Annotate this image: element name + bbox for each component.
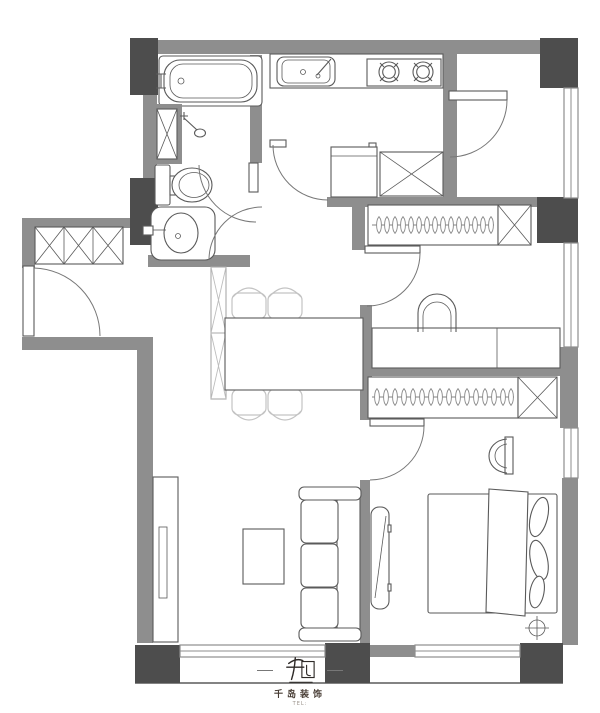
structural-column xyxy=(540,38,578,88)
storage-room xyxy=(449,91,507,157)
wardrobe-cabinet-x xyxy=(498,205,531,245)
bathtub xyxy=(156,56,262,106)
study-room xyxy=(365,205,560,368)
wall xyxy=(130,40,578,54)
entry xyxy=(23,227,123,336)
wall xyxy=(137,337,153,643)
wall xyxy=(360,480,370,643)
wardrobe-bottom xyxy=(368,377,557,418)
bedroom-door xyxy=(370,419,424,480)
bathroom xyxy=(143,56,262,260)
wall xyxy=(443,40,457,198)
wardrobe-cabinet-x xyxy=(518,377,557,418)
sofa-back xyxy=(337,494,360,634)
sofa-armrest xyxy=(299,487,361,500)
wall xyxy=(560,347,578,428)
floor-plan-page: 千岛装饰 TEL: xyxy=(0,0,600,713)
entry-door xyxy=(23,266,100,336)
logo: 千岛装饰 TEL: xyxy=(0,654,600,707)
wardrobe-top xyxy=(368,205,531,245)
dining-chair xyxy=(268,389,302,420)
plumbing-shaft xyxy=(152,104,182,164)
desk xyxy=(372,328,560,368)
dining-table xyxy=(225,318,363,390)
wall xyxy=(352,207,365,250)
structural-column xyxy=(537,197,578,243)
floor-plan-drawing xyxy=(0,0,600,713)
logo-divider-right xyxy=(327,670,343,671)
qiandao-seal-icon xyxy=(283,654,317,686)
bedside-chair xyxy=(489,437,513,474)
study-door xyxy=(365,246,420,306)
kitchen-storage-cabinet xyxy=(380,152,443,196)
sofa-cushion xyxy=(301,588,338,628)
dining-chair xyxy=(232,389,266,420)
wall xyxy=(22,228,35,268)
hall-door xyxy=(209,207,262,260)
window xyxy=(564,243,578,347)
blanket xyxy=(486,489,528,616)
sofa xyxy=(299,487,361,641)
wall xyxy=(22,337,153,350)
refrigerator xyxy=(331,143,377,197)
living-room xyxy=(153,477,361,642)
coffee-table xyxy=(243,529,284,584)
sofa-cushion xyxy=(301,544,338,587)
logo-phone-text: TEL: xyxy=(293,701,308,707)
master-bedroom xyxy=(368,377,557,640)
kitchen-door xyxy=(270,140,328,200)
dining-chair xyxy=(232,288,266,319)
wall xyxy=(562,478,578,645)
window xyxy=(564,428,578,478)
wash-basin xyxy=(143,207,215,260)
toilet xyxy=(155,165,212,205)
duct-column xyxy=(211,267,226,399)
shoe-cabinet xyxy=(35,227,123,264)
dining-area xyxy=(211,267,363,420)
gas-stove xyxy=(367,59,441,86)
logo-company-name: 千岛装饰 xyxy=(274,687,326,700)
wall-tv xyxy=(371,507,391,609)
sofa-armrest xyxy=(299,628,361,641)
double-bed xyxy=(428,489,557,616)
logo-divider-left xyxy=(257,670,273,671)
desk-chair xyxy=(418,294,456,332)
dining-chair xyxy=(268,288,302,319)
sofa-cushion xyxy=(301,500,338,543)
window xyxy=(564,88,578,198)
kitchen-sink xyxy=(277,57,335,86)
basin-tap-icon xyxy=(143,226,153,235)
structural-column xyxy=(130,38,158,95)
shower-icon xyxy=(180,112,206,137)
tv-cabinet xyxy=(153,477,178,642)
floor-drain-symbol xyxy=(525,616,549,640)
storage-room-door xyxy=(449,91,507,157)
